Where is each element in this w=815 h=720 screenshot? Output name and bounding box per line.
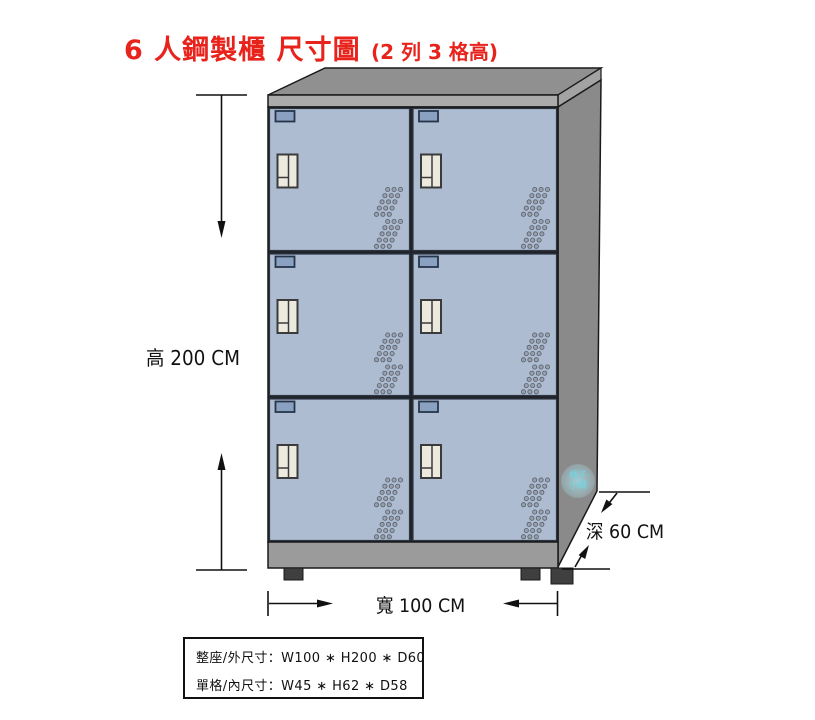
door-handle-lock <box>278 155 298 188</box>
locker-door-row2-col2 <box>413 254 557 396</box>
locker-door-row3-col2 <box>413 399 557 541</box>
name-plate <box>419 257 438 268</box>
width-dimension-label: 寬 100 CM <box>376 591 465 618</box>
height-dimension <box>196 95 247 570</box>
name-plate <box>276 402 295 413</box>
cabinet-foot-right <box>521 568 540 580</box>
height-dimension-label: 高 200 CM <box>146 342 240 371</box>
spec-box: 整座/外尺寸：W100 ∗ H200 ∗ D60 單格/內尺寸：W45 ∗ H6… <box>183 637 424 699</box>
cabinet-base-strip <box>268 542 558 568</box>
locker-door-row1-col2 <box>413 109 557 251</box>
door-handle-lock <box>278 300 298 333</box>
cabinet-top-face <box>268 68 601 95</box>
door-handle-lock <box>278 445 298 478</box>
cabinet-foot-left <box>284 568 303 580</box>
watermark-text: 櫃子小舖 <box>567 471 589 491</box>
locker-doors <box>270 109 557 541</box>
door-handle-lock <box>421 155 441 188</box>
name-plate <box>419 111 438 122</box>
name-plate <box>419 402 438 413</box>
locker-door-row1-col1 <box>270 109 410 251</box>
cabinet-foot-back <box>551 568 573 584</box>
locker-door-row2-col1 <box>270 254 410 396</box>
door-handle-lock <box>421 300 441 333</box>
name-plate <box>276 111 295 122</box>
cabinet-front-top-strip <box>268 95 558 107</box>
diagram-canvas: 6 人鋼製櫃 尺寸圖 (2 列 3 格高) <box>0 0 815 720</box>
watermark-stamp: 櫃子小舖 <box>561 464 595 498</box>
spec-line-outer: 整座/外尺寸：W100 ∗ H200 ∗ D60 <box>196 647 422 666</box>
spec-line-inner: 單格/內尺寸：W45 ∗ H62 ∗ D58 <box>196 675 422 694</box>
name-plate <box>276 257 295 268</box>
locker-door-row3-col1 <box>270 399 410 541</box>
depth-dimension-label: 深 60 CM <box>586 517 664 544</box>
door-handle-lock <box>421 445 441 478</box>
